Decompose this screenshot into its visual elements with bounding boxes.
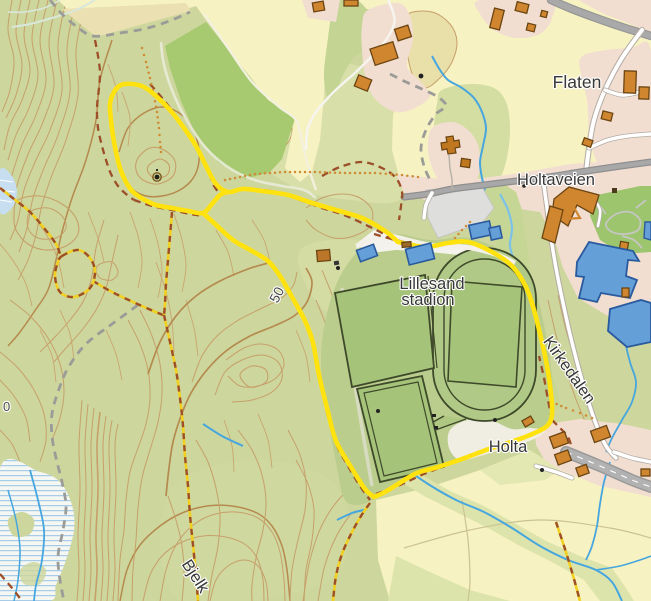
svg-text:Holta: Holta bbox=[489, 438, 528, 456]
svg-text:Flaten: Flaten bbox=[553, 72, 602, 92]
svg-text:0: 0 bbox=[3, 399, 10, 414]
svg-text:Holtaveien: Holtaveien bbox=[517, 171, 595, 189]
svg-text:stadion: stadion bbox=[401, 291, 454, 309]
